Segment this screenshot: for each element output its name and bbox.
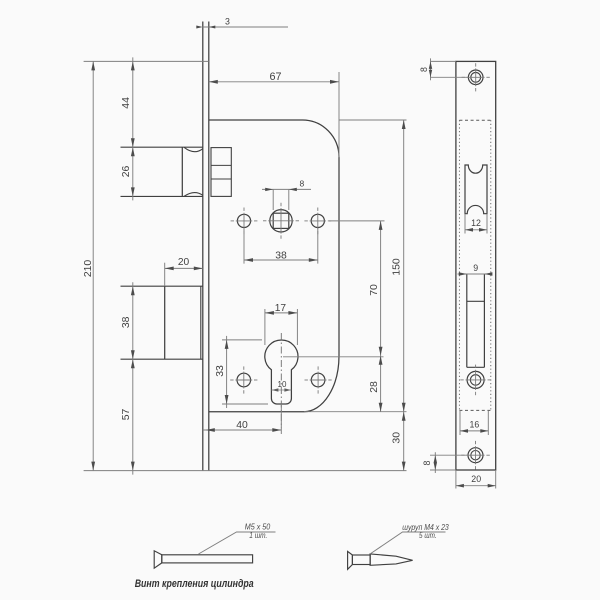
svg-text:210: 210: [83, 260, 94, 278]
svg-text:3: 3: [225, 17, 230, 27]
svg-text:10: 10: [278, 380, 287, 389]
svg-text:20: 20: [471, 474, 481, 484]
svg-text:Винт крепления цилиндра: Винт крепления цилиндра: [135, 578, 254, 590]
svg-text:40: 40: [236, 420, 248, 431]
svg-text:8: 8: [419, 67, 429, 72]
svg-text:5 шт.: 5 шт.: [419, 530, 437, 540]
svg-text:17: 17: [275, 303, 287, 314]
svg-text:67: 67: [269, 71, 281, 83]
svg-text:8: 8: [300, 179, 305, 189]
svg-text:44: 44: [121, 97, 132, 109]
svg-text:33: 33: [215, 365, 226, 377]
svg-text:38: 38: [275, 250, 287, 261]
svg-text:70: 70: [369, 284, 380, 296]
svg-text:16: 16: [470, 419, 480, 429]
svg-text:26: 26: [121, 166, 132, 178]
svg-text:20: 20: [178, 257, 190, 268]
svg-text:30: 30: [392, 432, 403, 444]
svg-text:12: 12: [471, 218, 481, 228]
svg-text:150: 150: [391, 258, 402, 276]
svg-text:28: 28: [369, 381, 380, 393]
svg-text:1 шт.: 1 шт.: [249, 530, 267, 540]
svg-text:57: 57: [121, 409, 132, 421]
svg-text:8: 8: [422, 460, 432, 465]
svg-text:9: 9: [473, 263, 478, 273]
svg-text:38: 38: [121, 316, 132, 328]
